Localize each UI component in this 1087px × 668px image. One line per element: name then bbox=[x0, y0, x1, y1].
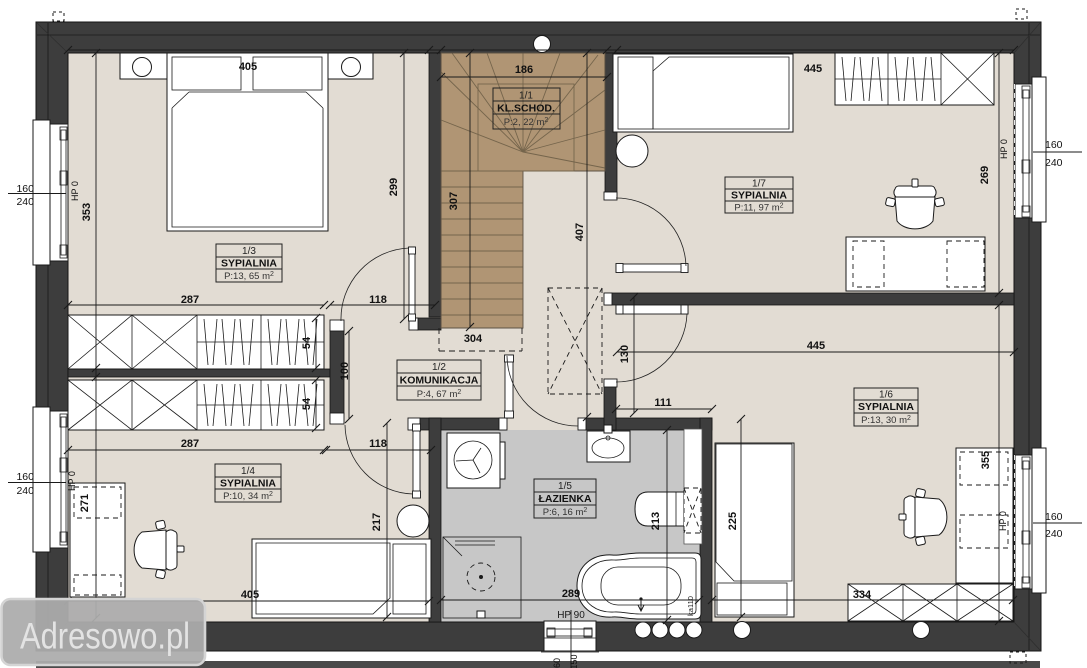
svg-text:240: 240 bbox=[1045, 528, 1063, 540]
svg-text:60: 60 bbox=[552, 658, 562, 668]
svg-text:304: 304 bbox=[464, 333, 483, 345]
svg-text:KOMUNIKACJA: KOMUNIKACJA bbox=[400, 375, 479, 387]
svg-text:P:4, 67 m2: P:4, 67 m2 bbox=[417, 389, 462, 400]
svg-text:1/3: 1/3 bbox=[242, 246, 256, 257]
svg-text:P:13, 65 m2: P:13, 65 m2 bbox=[224, 271, 274, 282]
svg-text:1/2: 1/2 bbox=[432, 362, 446, 373]
svg-text:Adresowo.pl: Adresowo.pl bbox=[20, 616, 190, 657]
svg-text:1/7: 1/7 bbox=[752, 179, 766, 190]
svg-text:287: 287 bbox=[181, 438, 199, 450]
svg-text:217: 217 bbox=[371, 513, 383, 531]
svg-text:118: 118 bbox=[369, 294, 387, 306]
svg-text:HP 0: HP 0 bbox=[998, 511, 1008, 531]
svg-text:240: 240 bbox=[16, 485, 34, 497]
svg-text:407: 407 bbox=[574, 223, 586, 241]
svg-text:355: 355 bbox=[980, 451, 992, 469]
svg-text:1/4: 1/4 bbox=[241, 466, 255, 477]
svg-text:445: 445 bbox=[807, 340, 825, 352]
svg-text:SYPIALNIA: SYPIALNIA bbox=[858, 401, 914, 413]
svg-text:353: 353 bbox=[81, 203, 93, 221]
svg-text:HP 0: HP 0 bbox=[999, 139, 1009, 159]
svg-text:1/1: 1/1 bbox=[519, 91, 533, 102]
svg-text:299: 299 bbox=[388, 178, 400, 196]
svg-text:ka110: ka110 bbox=[686, 596, 695, 616]
svg-text:240: 240 bbox=[1045, 157, 1063, 169]
svg-text:118: 118 bbox=[369, 438, 387, 450]
svg-text:150: 150 bbox=[569, 654, 579, 668]
svg-text:213: 213 bbox=[650, 512, 662, 530]
svg-text:225: 225 bbox=[727, 512, 739, 530]
svg-text:445: 445 bbox=[804, 63, 822, 75]
svg-text:307: 307 bbox=[448, 192, 460, 210]
svg-text:240: 240 bbox=[16, 196, 34, 208]
svg-text:P:13, 30 m2: P:13, 30 m2 bbox=[861, 415, 911, 426]
svg-text:P:6, 16 m2: P:6, 16 m2 bbox=[543, 507, 588, 518]
svg-text:SYPIALNIA: SYPIALNIA bbox=[220, 478, 276, 490]
svg-text:P:10, 34 m2: P:10, 34 m2 bbox=[223, 491, 273, 502]
svg-text:SYPIALNIA: SYPIALNIA bbox=[221, 258, 277, 270]
svg-text:HP 0: HP 0 bbox=[70, 181, 80, 201]
svg-text:P:11, 97 m2: P:11, 97 m2 bbox=[734, 203, 783, 214]
svg-text:269: 269 bbox=[979, 166, 991, 184]
svg-text:160: 160 bbox=[16, 183, 34, 195]
svg-text:54: 54 bbox=[301, 336, 313, 349]
svg-text:HP 0: HP 0 bbox=[67, 471, 77, 491]
svg-text:186: 186 bbox=[515, 64, 533, 76]
svg-text:1/5: 1/5 bbox=[558, 481, 572, 492]
svg-text:KL.SCHOD.: KL.SCHOD. bbox=[497, 103, 555, 115]
svg-text:130: 130 bbox=[619, 345, 631, 363]
svg-text:ŁAZIENKA: ŁAZIENKA bbox=[538, 493, 591, 505]
svg-text:271: 271 bbox=[79, 494, 91, 512]
svg-text:P:2, 22 m2: P:2, 22 m2 bbox=[504, 117, 549, 128]
svg-text:160: 160 bbox=[1045, 511, 1063, 523]
svg-text:405: 405 bbox=[241, 589, 259, 601]
svg-text:287: 287 bbox=[181, 294, 199, 306]
svg-text:160: 160 bbox=[16, 471, 34, 483]
svg-text:54: 54 bbox=[301, 397, 313, 410]
svg-text:111: 111 bbox=[654, 397, 671, 409]
svg-text:160: 160 bbox=[1045, 139, 1063, 151]
svg-text:SYPIALNIA: SYPIALNIA bbox=[731, 190, 787, 202]
svg-text:1/6: 1/6 bbox=[879, 390, 893, 401]
svg-text:405: 405 bbox=[239, 61, 257, 73]
svg-text:334: 334 bbox=[853, 589, 872, 601]
svg-text:289: 289 bbox=[562, 588, 580, 600]
svg-text:100: 100 bbox=[339, 362, 351, 380]
